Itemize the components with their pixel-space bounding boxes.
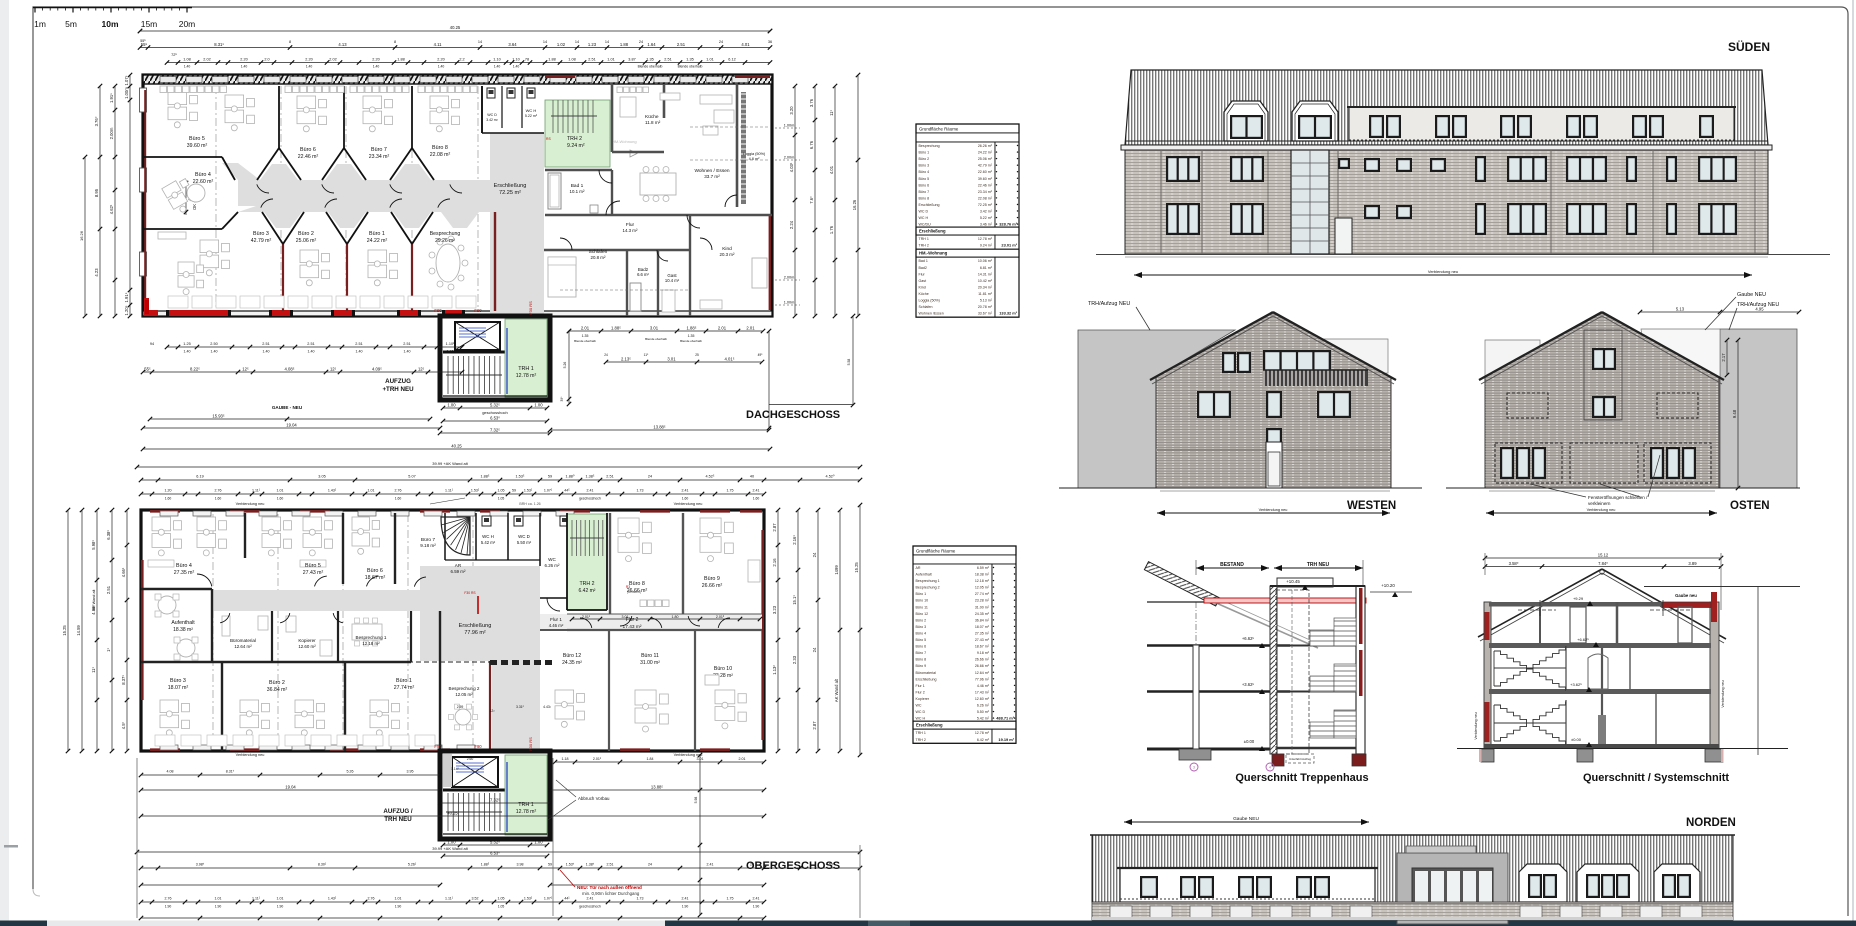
svg-text:39⁵: 39⁵ xyxy=(560,396,564,402)
svg-text:27.74 m²: 27.74 m² xyxy=(394,685,415,691)
svg-text:4.62¹: 4.62¹ xyxy=(109,204,114,214)
svg-text:BESTAND: BESTAND xyxy=(1220,562,1244,568)
svg-text:TRH 2: TRH 2 xyxy=(567,136,582,142)
svg-text:22.46 m²: 22.46 m² xyxy=(298,154,319,160)
svg-text:1.01: 1.01 xyxy=(215,897,222,901)
svg-text:39.99 +AK Wand alt: 39.99 +AK Wand alt xyxy=(432,461,468,466)
svg-text:1.84: 1.84 xyxy=(647,757,654,761)
svg-text:AR: AR xyxy=(455,563,462,568)
svg-text:39.60 m²: 39.60 m² xyxy=(978,177,993,181)
svg-text:3.95: 3.95 xyxy=(407,770,414,774)
svg-text:1.11¹: 1.11¹ xyxy=(445,489,454,493)
svg-text:10.06 m²: 10.06 m² xyxy=(978,259,993,263)
svg-text:2.20: 2.20 xyxy=(240,58,247,62)
svg-text:4.03¹: 4.03¹ xyxy=(789,162,794,172)
svg-text:2.41: 2.41 xyxy=(707,863,714,867)
svg-text:Loggia (50%): Loggia (50%) xyxy=(919,299,940,303)
svg-text:42.79 m²: 42.79 m² xyxy=(251,238,272,244)
svg-text:14.31 m²: 14.31 m² xyxy=(978,272,993,276)
svg-text:23.28 m²: 23.28 m² xyxy=(975,599,990,603)
svg-text:6.38¹: 6.38¹ xyxy=(106,530,111,540)
svg-text:2.20: 2.20 xyxy=(305,58,312,62)
svg-text:1.05: 1.05 xyxy=(498,497,505,501)
svg-text:14: 14 xyxy=(605,40,609,44)
svg-text:AK Wand alt: AK Wand alt xyxy=(834,678,839,702)
svg-text:5.32⁵: 5.32⁵ xyxy=(490,839,500,844)
svg-text:6.12: 6.12 xyxy=(728,58,735,62)
svg-text:19.04: 19.04 xyxy=(286,422,297,427)
svg-text:2.17: 2.17 xyxy=(1721,353,1726,362)
svg-text:2.13⁵: 2.13⁵ xyxy=(621,356,631,361)
svg-text:F90: F90 xyxy=(474,744,482,749)
svg-text:133.32 m²: 133.32 m² xyxy=(999,311,1017,316)
svg-text:2.33: 2.33 xyxy=(792,655,797,664)
svg-text:40.25: 40.25 xyxy=(451,443,462,448)
svg-text:2.87: 2.87 xyxy=(772,523,777,532)
svg-text:Büro 1: Büro 1 xyxy=(919,151,930,155)
svg-text:R3: R3 xyxy=(626,585,630,589)
svg-text:F90: F90 xyxy=(474,308,482,313)
svg-text:RS: RS xyxy=(546,137,551,141)
svg-text:1.38⁰: 1.38⁰ xyxy=(586,863,595,867)
svg-text:27.43 m²: 27.43 m² xyxy=(303,570,324,576)
svg-text:8.31⁰: 8.31⁰ xyxy=(226,770,235,774)
svg-text:78: 78 xyxy=(525,58,529,62)
svg-text:8.95: 8.95 xyxy=(94,188,99,197)
svg-text:min. 0,90m lichter Durchgang: min. 0,90m lichter Durchgang xyxy=(582,891,640,896)
svg-text:3.42 m²: 3.42 m² xyxy=(486,118,498,122)
svg-text:2.02: 2.02 xyxy=(203,58,210,62)
svg-text:Büro 2: Büro 2 xyxy=(919,157,930,161)
svg-text:3.01: 3.01 xyxy=(650,325,659,330)
svg-text:1.90: 1.90 xyxy=(395,905,402,909)
svg-text:2.2: 2.2 xyxy=(459,58,464,62)
svg-text:25.06 m²: 25.06 m² xyxy=(978,157,993,161)
svg-text:1.75: 1.75 xyxy=(727,897,734,901)
svg-text:Besprechung 1: Besprechung 1 xyxy=(916,579,940,583)
svg-text:Wohnen /Essen: Wohnen /Essen xyxy=(919,312,944,316)
svg-text:2.51: 2.51 xyxy=(262,342,269,346)
svg-text:24: 24 xyxy=(604,353,608,357)
svg-text:5.42 m²: 5.42 m² xyxy=(977,717,990,721)
svg-text:4.52⁰: 4.52⁰ xyxy=(826,475,835,479)
svg-text:1.05: 1.05 xyxy=(498,489,505,493)
svg-text:1.76: 1.76 xyxy=(829,225,834,234)
svg-text:DACHGESCHOSS: DACHGESCHOSS xyxy=(746,409,840,421)
svg-text:27.43 m²: 27.43 m² xyxy=(975,638,990,642)
svg-text:1,00m: 1,00m xyxy=(784,124,795,128)
svg-text:1.40: 1.40 xyxy=(306,65,313,69)
svg-text:Erschließung: Erschließung xyxy=(916,723,943,728)
svg-text:Besprechung 2: Besprechung 2 xyxy=(449,686,480,691)
svg-text:3.42 m²: 3.42 m² xyxy=(980,210,993,214)
svg-text:8: 8 xyxy=(289,40,291,44)
svg-text:2.0: 2.0 xyxy=(264,58,269,62)
svg-text:27.35 m²: 27.35 m² xyxy=(174,570,195,576)
svg-text:1.90: 1.90 xyxy=(682,905,689,909)
svg-text:10m: 10m xyxy=(101,19,118,29)
svg-text:27.35 m²: 27.35 m² xyxy=(975,632,990,636)
svg-text:1.00: 1.00 xyxy=(447,402,456,407)
svg-text:12²: 12² xyxy=(330,366,337,371)
svg-text:44⁵: 44⁵ xyxy=(564,489,570,493)
svg-text:Büro 6: Büro 6 xyxy=(919,183,930,187)
svg-text:1.11¹: 1.11¹ xyxy=(252,489,261,493)
svg-text:Grundfläche Räume: Grundfläche Räume xyxy=(919,127,959,132)
svg-text:Büro 7: Büro 7 xyxy=(916,651,927,655)
svg-text:8.31¹: 8.31¹ xyxy=(214,42,224,47)
svg-text:Küche: Küche xyxy=(919,292,929,296)
svg-text:6.26 m²: 6.26 m² xyxy=(545,563,560,568)
svg-text:5.42 m²: 5.42 m² xyxy=(481,540,496,545)
svg-text:2.41: 2.41 xyxy=(587,897,594,901)
svg-text:+6.62⁵: +6.62⁵ xyxy=(1242,636,1255,641)
svg-text:Querschnitt Treppenhaus: Querschnitt Treppenhaus xyxy=(1235,772,1368,784)
svg-text:AR: AR xyxy=(916,566,921,570)
svg-text:15.25: 15.25 xyxy=(62,625,67,636)
svg-text:1.01: 1.01 xyxy=(395,897,402,901)
svg-text:29.26 m²: 29.26 m² xyxy=(435,238,455,244)
svg-text:12.78 m²: 12.78 m² xyxy=(516,809,537,815)
svg-text:12⁵: 12⁵ xyxy=(242,366,249,371)
svg-text:1.11¹: 1.11¹ xyxy=(252,897,261,901)
svg-text:26.66 m²: 26.66 m² xyxy=(702,583,723,589)
svg-text:F30 RS: F30 RS xyxy=(528,301,533,315)
svg-text:7.32⁵: 7.32⁵ xyxy=(490,797,500,802)
svg-text:Fensteröffnungen schließen /: Fensteröffnungen schließen / xyxy=(1588,495,1648,500)
svg-text:1.40: 1.40 xyxy=(447,350,454,354)
svg-text:1.07⁵: 1.07⁵ xyxy=(124,75,129,85)
svg-text:4.95: 4.95 xyxy=(1755,306,1764,311)
svg-text:3.89: 3.89 xyxy=(1688,561,1697,566)
svg-text:Besprechung: Besprechung xyxy=(430,231,461,237)
svg-text:18.67 m²: 18.67 m² xyxy=(975,645,990,649)
svg-text:14: 14 xyxy=(543,40,547,44)
svg-text:TRH 2: TRH 2 xyxy=(580,581,595,587)
svg-text:1.90: 1.90 xyxy=(165,905,172,909)
svg-text:12.78 m²: 12.78 m² xyxy=(978,237,993,241)
svg-text:24.35 m²: 24.35 m² xyxy=(975,612,990,616)
svg-text:59: 59 xyxy=(512,489,516,493)
svg-text:Flur 2: Flur 2 xyxy=(916,690,925,694)
svg-text:Verblendung neu: Verblendung neu xyxy=(1474,712,1478,739)
svg-text:Büro 4: Büro 4 xyxy=(919,170,930,174)
svg-text:12.78 m²: 12.78 m² xyxy=(975,731,990,735)
svg-text:2.01²: 2.01² xyxy=(716,615,725,619)
svg-text:2.41: 2.41 xyxy=(682,897,689,901)
svg-text:13.88⁵: 13.88⁵ xyxy=(653,424,665,429)
svg-text:5.98¹: 5.98¹ xyxy=(91,540,96,550)
svg-text:Verblendung neu: Verblendung neu xyxy=(236,502,265,506)
svg-text:Verblendung neu: Verblendung neu xyxy=(1428,269,1458,274)
svg-text:2.76: 2.76 xyxy=(165,897,172,901)
svg-text:7.32⁵: 7.32⁵ xyxy=(490,427,500,432)
svg-text:23.34 m²: 23.34 m² xyxy=(978,190,993,194)
svg-text:Büro 6: Büro 6 xyxy=(916,645,927,649)
svg-text:1.10: 1.10 xyxy=(512,58,519,62)
svg-text:6.53⁰: 6.53⁰ xyxy=(490,415,500,420)
svg-text:2.20: 2.20 xyxy=(372,58,379,62)
svg-text:9.24 m²: 9.24 m² xyxy=(567,143,585,149)
svg-text:1.60: 1.60 xyxy=(395,497,402,501)
svg-text:1.53²: 1.53² xyxy=(524,489,533,493)
svg-text:14: 14 xyxy=(478,40,482,44)
svg-text:40: 40 xyxy=(750,475,754,479)
svg-text:12²: 12² xyxy=(490,709,496,713)
svg-text:24.22 m²: 24.22 m² xyxy=(367,238,388,244)
svg-text:TRH 2: TRH 2 xyxy=(916,738,926,742)
svg-text:Büro 7: Büro 7 xyxy=(371,147,387,153)
svg-text:13.88⁵: 13.88⁵ xyxy=(651,784,663,789)
svg-text:4.43¹: 4.43¹ xyxy=(543,705,552,709)
svg-text:Büro 12: Büro 12 xyxy=(916,612,929,616)
svg-text:Büro 12: Büro 12 xyxy=(563,653,581,659)
svg-text:WESTEN: WESTEN xyxy=(1347,500,1396,512)
svg-text:2.01: 2.01 xyxy=(739,757,746,761)
svg-text:2.60: 2.60 xyxy=(467,757,474,761)
svg-text:1.88⁵: 1.88⁵ xyxy=(481,863,490,867)
svg-text:SÜDEN: SÜDEN xyxy=(1728,39,1770,54)
svg-text:1.75: 1.75 xyxy=(727,489,734,493)
svg-text:WC D: WC D xyxy=(916,710,926,714)
svg-text:1.07¹: 1.07¹ xyxy=(544,489,553,493)
svg-text:NORDEN: NORDEN xyxy=(1686,817,1736,829)
svg-text:1.40: 1.40 xyxy=(184,65,191,69)
svg-text:15.1¹: 15.1¹ xyxy=(792,595,797,605)
svg-text:1.40: 1.40 xyxy=(184,350,191,354)
svg-text:2,00m: 2,00m xyxy=(784,156,795,160)
svg-text:20m: 20m xyxy=(179,19,196,29)
svg-text:94: 94 xyxy=(150,342,154,346)
svg-text:±0.00: ±0.00 xyxy=(1244,739,1255,744)
svg-text:1.01: 1.01 xyxy=(277,897,284,901)
svg-text:Büro 1: Büro 1 xyxy=(396,678,412,684)
svg-text:Büro 2: Büro 2 xyxy=(298,231,314,237)
svg-text:1.35: 1.35 xyxy=(582,334,589,338)
svg-text:3.01: 3.01 xyxy=(667,356,676,361)
svg-text:Verblendung neu: Verblendung neu xyxy=(1721,680,1725,707)
svg-text:5.26: 5.26 xyxy=(347,770,354,774)
svg-text:3.76⁰: 3.76⁰ xyxy=(94,116,99,126)
svg-text:6.42 m²: 6.42 m² xyxy=(579,588,596,594)
svg-text:1.88⁰: 1.88⁰ xyxy=(566,475,575,479)
svg-text:+6.62⁵: +6.62⁵ xyxy=(1577,637,1589,642)
svg-text:4.5⁰: 4.5⁰ xyxy=(121,721,126,729)
svg-text:Büro 11: Büro 11 xyxy=(641,653,659,659)
svg-text:12.05 m²: 12.05 m² xyxy=(975,586,990,590)
svg-text:2.41: 2.41 xyxy=(753,489,760,493)
svg-text:TRH NEU: TRH NEU xyxy=(1307,562,1330,568)
svg-text:Büro 3: Büro 3 xyxy=(919,164,930,168)
svg-text:WC H: WC H xyxy=(526,108,537,113)
svg-text:1.53⁰: 1.53⁰ xyxy=(566,863,575,867)
svg-text:2.50: 2.50 xyxy=(210,342,217,346)
svg-text:3.98⁰: 3.98⁰ xyxy=(196,863,205,867)
svg-text:9.18 m²: 9.18 m² xyxy=(420,543,436,548)
svg-text:1.11¹: 1.11¹ xyxy=(445,897,454,901)
svg-text:AUFZUG: AUFZUG xyxy=(385,378,411,385)
svg-text:+9.29: +9.29 xyxy=(1573,596,1584,601)
svg-text:4.11: 4.11 xyxy=(434,42,443,47)
svg-text:TRH 1: TRH 1 xyxy=(919,237,929,241)
svg-text:72.25 m²: 72.25 m² xyxy=(978,203,993,207)
svg-text:Unterfahrt Aufzug: Unterfahrt Aufzug xyxy=(1289,757,1311,761)
svg-text:8.30¹: 8.30¹ xyxy=(318,863,327,867)
svg-text:Verblendung neu: Verblendung neu xyxy=(1587,508,1616,512)
svg-text:2.01: 2.01 xyxy=(746,325,755,330)
svg-text:11⁵: 11⁵ xyxy=(644,353,649,357)
svg-text:Flur 1: Flur 1 xyxy=(550,617,562,622)
svg-text:3.98: 3.98 xyxy=(517,863,524,867)
svg-text:12.64 m²: 12.64 m² xyxy=(234,644,252,649)
svg-text:2.01¹: 2.01¹ xyxy=(593,757,602,761)
svg-text:WC: WC xyxy=(548,557,556,562)
svg-text:OSTEN: OSTEN xyxy=(1730,500,1770,512)
svg-text:2.01¹: 2.01¹ xyxy=(582,615,591,619)
svg-text:4.46 m²: 4.46 m² xyxy=(977,684,990,688)
svg-text:1.43²: 1.43² xyxy=(328,897,337,901)
svg-text:1.88⁵: 1.88⁵ xyxy=(481,475,490,479)
svg-text:42.79 m²: 42.79 m² xyxy=(978,164,993,168)
svg-text:Blende oberhalb: Blende oberhalb xyxy=(638,65,663,69)
svg-text:10.42 m²: 10.42 m² xyxy=(978,279,993,283)
svg-text:49⁵: 49⁵ xyxy=(758,353,764,357)
svg-text:1.35: 1.35 xyxy=(646,58,653,62)
svg-text:1.14⁵: 1.14⁵ xyxy=(451,767,460,771)
svg-text:2.00m: 2.00m xyxy=(109,127,114,139)
svg-text:22.46 m²: 22.46 m² xyxy=(978,183,993,187)
svg-text:8.22⁵: 8.22⁵ xyxy=(190,366,200,371)
svg-text:1m: 1m xyxy=(34,19,46,29)
svg-text:±0.00: ±0.00 xyxy=(1571,737,1582,742)
svg-text:Aufenthalt: Aufenthalt xyxy=(171,620,195,626)
svg-text:Büro 4: Büro 4 xyxy=(916,632,927,636)
svg-text:2.51: 2.51 xyxy=(588,58,595,62)
svg-text:1499: 1499 xyxy=(834,565,839,575)
svg-text:1.08: 1.08 xyxy=(183,58,190,62)
svg-text:Büro 3: Büro 3 xyxy=(916,625,927,629)
svg-text:TRH 1: TRH 1 xyxy=(916,731,926,735)
svg-text:4.08: 4.08 xyxy=(167,770,174,774)
svg-text:2.76: 2.76 xyxy=(215,489,222,493)
svg-text:19.19 m²: 19.19 m² xyxy=(998,737,1014,742)
svg-text:328.76 m²: 328.76 m² xyxy=(999,222,1017,227)
svg-text:2.41: 2.41 xyxy=(753,897,760,901)
svg-text:Büro 10: Büro 10 xyxy=(916,599,929,603)
svg-text:12²: 12² xyxy=(418,366,425,371)
svg-text:2.51: 2.51 xyxy=(607,863,614,867)
svg-text:3.05: 3.05 xyxy=(318,475,325,479)
svg-text:18.07 m²: 18.07 m² xyxy=(168,685,189,691)
svg-text:1.53²: 1.53² xyxy=(524,897,533,901)
svg-text:Erschließung: Erschließung xyxy=(916,677,937,681)
svg-text:Besprechung: Besprechung xyxy=(919,144,940,148)
svg-text:Erschließung: Erschließung xyxy=(459,623,492,629)
svg-text:+10.20: +10.20 xyxy=(1381,583,1395,588)
svg-text:3.87: 3.87 xyxy=(628,58,635,62)
svg-text:4.09⁵: 4.09⁵ xyxy=(372,366,382,371)
svg-text:Büro 4: Büro 4 xyxy=(195,172,211,178)
svg-text:59: 59 xyxy=(548,475,552,479)
svg-text:2.59: 2.59 xyxy=(457,705,464,709)
svg-text:Erschließung: Erschließung xyxy=(919,229,946,234)
svg-text:Büro 2: Büro 2 xyxy=(269,680,285,686)
svg-text:Büro 6: Büro 6 xyxy=(300,147,316,153)
svg-text:12.18 m²: 12.18 m² xyxy=(975,579,990,583)
svg-text:22.60 m²: 22.60 m² xyxy=(193,179,214,185)
svg-text:2.16: 2.16 xyxy=(772,558,777,567)
svg-text:Flur 1: Flur 1 xyxy=(916,684,925,688)
svg-text:24: 24 xyxy=(812,552,817,557)
svg-text:24: 24 xyxy=(719,40,723,44)
svg-text:1,00m: 1,00m xyxy=(784,301,795,305)
svg-text:11.81 m²: 11.81 m² xyxy=(978,292,993,296)
svg-text:7.84⁰: 7.84⁰ xyxy=(1598,561,1608,566)
svg-text:5.98: 5.98 xyxy=(694,797,698,804)
svg-text:1.40: 1.40 xyxy=(356,350,363,354)
svg-text:2.51: 2.51 xyxy=(106,585,111,594)
svg-text:Büro 5: Büro 5 xyxy=(305,563,321,569)
svg-text:1.40: 1.40 xyxy=(404,350,411,354)
svg-text:15.25: 15.25 xyxy=(854,562,859,573)
svg-text:5.50 m²: 5.50 m² xyxy=(517,540,532,545)
svg-text:Kopierer: Kopierer xyxy=(298,638,316,643)
svg-text:Besprechung 2: Besprechung 2 xyxy=(916,586,940,590)
svg-text:2.41: 2.41 xyxy=(587,489,594,493)
svg-text:16.26: 16.26 xyxy=(79,230,84,241)
svg-text:1.90: 1.90 xyxy=(753,905,760,909)
svg-text:F30 RS: F30 RS xyxy=(464,591,476,595)
svg-text:3.52: 3.52 xyxy=(472,897,479,901)
svg-text:3.20: 3.20 xyxy=(789,106,794,115)
svg-text:3.76: 3.76 xyxy=(809,98,814,107)
svg-text:WC/DU: WC/DU xyxy=(919,223,932,227)
svg-text:Büro 10: Büro 10 xyxy=(714,666,732,672)
svg-text:+3.62⁵: +3.62⁵ xyxy=(1570,682,1582,687)
svg-text:Erschließung: Erschließung xyxy=(919,203,940,207)
svg-text:31.00 m²: 31.00 m² xyxy=(975,605,990,609)
svg-text:Büromaterial: Büromaterial xyxy=(916,671,937,675)
svg-text:1.40: 1.40 xyxy=(241,65,248,69)
svg-text:AUFZUG /: AUFZUG / xyxy=(383,808,412,815)
svg-text:2.51: 2.51 xyxy=(403,342,410,346)
svg-text:Büro 6: Büro 6 xyxy=(367,568,383,574)
svg-text:59: 59 xyxy=(548,863,552,867)
svg-text:1.88⁵: 1.88⁵ xyxy=(687,325,697,330)
svg-text:WC H: WC H xyxy=(919,216,929,220)
svg-text:1.35: 1.35 xyxy=(688,334,695,338)
svg-text:AK Wand alt: AK Wand alt xyxy=(92,589,96,611)
svg-text:1.53²: 1.53² xyxy=(471,489,480,493)
svg-text:Loggia (50%): Loggia (50%) xyxy=(743,152,766,156)
svg-text:1.18: 1.18 xyxy=(562,757,569,761)
svg-text:1¹: 1¹ xyxy=(106,648,111,652)
svg-text:6.53⁰: 6.53⁰ xyxy=(490,850,500,855)
svg-text:Blende oberhalb: Blende oberhalb xyxy=(574,339,596,343)
svg-text:1.00: 1.00 xyxy=(534,839,543,844)
svg-text:Gast: Gast xyxy=(919,279,927,283)
svg-text:2.76: 2.76 xyxy=(368,897,375,901)
svg-text:39.60 m²: 39.60 m² xyxy=(187,143,208,149)
svg-text:11¹: 11¹ xyxy=(829,110,834,116)
svg-text:1.07¹: 1.07¹ xyxy=(544,897,553,901)
svg-text:5.07: 5.07 xyxy=(408,475,415,479)
svg-text:15m: 15m xyxy=(141,19,158,29)
svg-text:Verblendung neu: Verblendung neu xyxy=(1259,508,1288,512)
svg-text:4: 4 xyxy=(1269,766,1271,770)
svg-text:verkleinern: verkleinern xyxy=(1588,501,1611,506)
svg-text:72⁵: 72⁵ xyxy=(171,53,177,57)
